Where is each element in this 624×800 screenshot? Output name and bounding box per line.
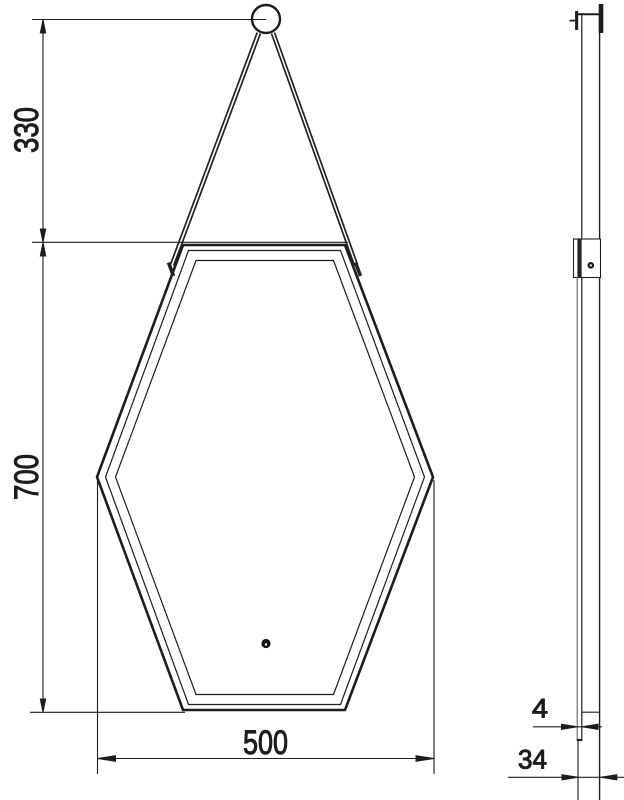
arrow-500-left (98, 756, 116, 762)
side-view (570, 4, 604, 800)
dim-label-330: 330 (8, 107, 46, 153)
right-strap (272, 33, 361, 277)
left-strap (169, 33, 261, 277)
dimension-lines-front: 330 700 500 (8, 20, 434, 775)
arrow-4-right (582, 724, 598, 729)
bracket-screw (588, 262, 595, 269)
front-view (32, 5, 433, 710)
technical-drawing-canvas: 330 700 500 (0, 0, 624, 800)
arrow-330-bottom (40, 229, 45, 242)
mirror-dimension-drawing: 330 700 500 (0, 0, 624, 800)
mirror-frame-middle (106, 251, 425, 705)
dim-label-700: 700 (8, 454, 46, 500)
dimension-lines-side: 4 34 (508, 694, 624, 800)
arrow-700-top (40, 242, 45, 256)
arrow-700-bottom (40, 699, 45, 712)
arrow-34-right (601, 775, 617, 780)
sensor-dot (261, 639, 270, 648)
dim-label-34: 34 (518, 745, 547, 775)
arrow-4-left (562, 724, 578, 729)
arrow-330-top (40, 20, 45, 34)
dim-label-500: 500 (243, 724, 288, 762)
arrow-34-left (562, 775, 578, 780)
arrow-500-right (416, 756, 434, 762)
dim-label-4: 4 (532, 694, 548, 724)
bracket-thick-edge (577, 239, 581, 278)
strap-end-bar (575, 11, 578, 30)
